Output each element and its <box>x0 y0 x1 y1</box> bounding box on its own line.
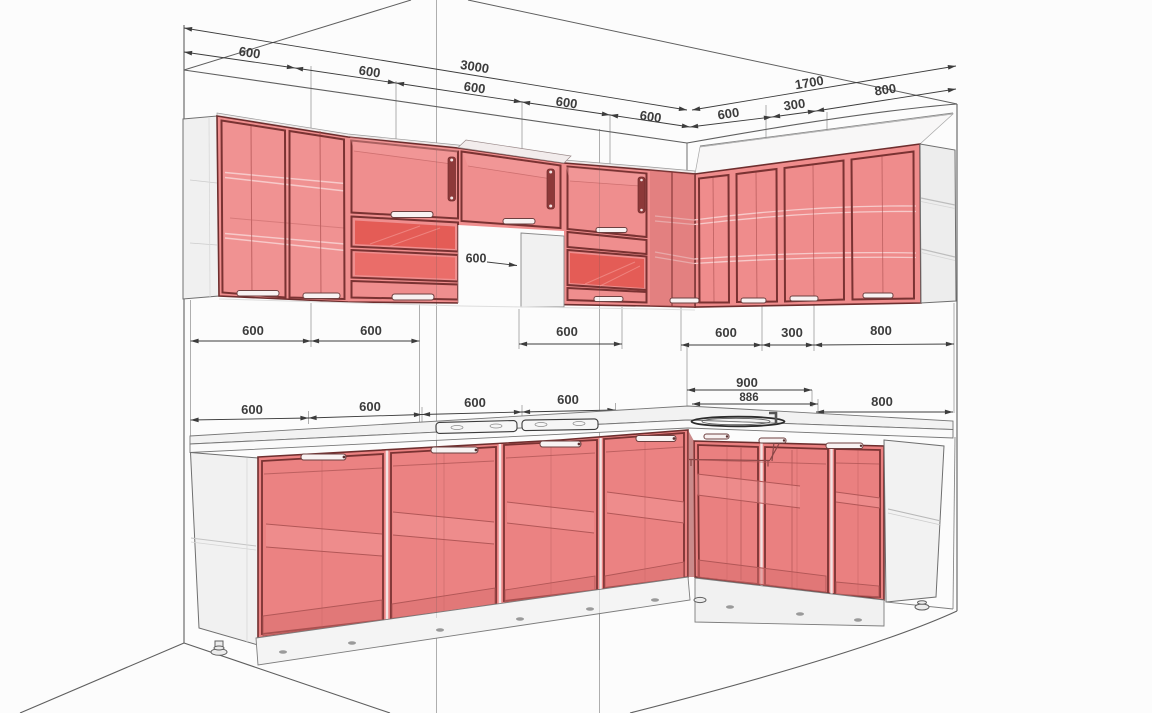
svg-text:800: 800 <box>871 394 893 409</box>
svg-text:800: 800 <box>870 323 892 338</box>
svg-text:800: 800 <box>873 81 897 99</box>
svg-text:600: 600 <box>717 105 741 123</box>
svg-text:886: 886 <box>739 392 758 404</box>
svg-text:600: 600 <box>557 392 579 407</box>
svg-text:600: 600 <box>359 399 381 414</box>
svg-text:600: 600 <box>241 402 263 417</box>
svg-text:600: 600 <box>639 108 663 126</box>
svg-text:600: 600 <box>242 323 264 338</box>
svg-text:600: 600 <box>463 79 487 97</box>
svg-text:600: 600 <box>466 252 487 266</box>
svg-text:600: 600 <box>358 63 382 81</box>
svg-text:600: 600 <box>555 94 579 112</box>
svg-text:600: 600 <box>238 44 262 62</box>
svg-text:600: 600 <box>464 395 486 410</box>
svg-text:300: 300 <box>781 325 803 340</box>
svg-text:600: 600 <box>360 323 382 338</box>
svg-text:600: 600 <box>556 324 578 339</box>
svg-text:600: 600 <box>715 325 737 340</box>
svg-text:300: 300 <box>783 96 807 114</box>
svg-text:900: 900 <box>736 375 758 390</box>
